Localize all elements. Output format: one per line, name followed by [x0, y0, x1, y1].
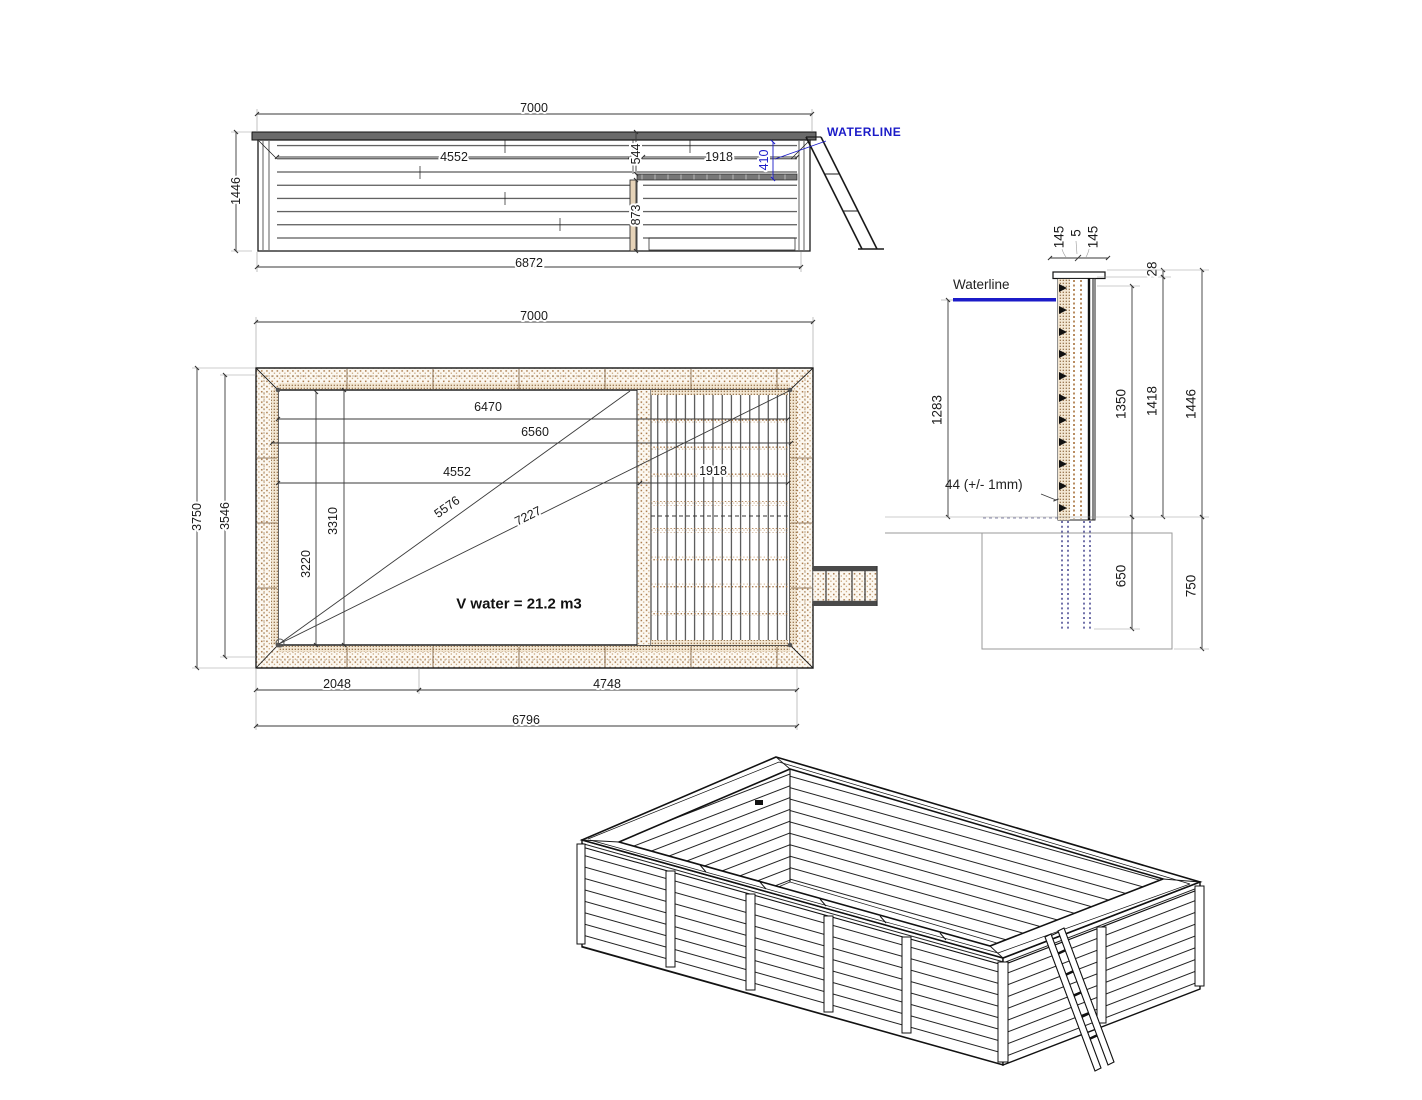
pool-technical-drawing: 7000 1446 6872 4552 1918 544 873 410 WAT… — [0, 0, 1422, 1100]
plan-dim-deck: 1918 — [699, 464, 727, 478]
water-volume-label: V water = 21.2 m3 — [456, 596, 582, 613]
plan-dim-side-inner: 3546 — [218, 502, 232, 530]
plan-dim-len3: 4552 — [443, 465, 471, 479]
rim-detail-mark — [755, 800, 763, 805]
sec-dim-height1: 1350 — [1114, 389, 1129, 419]
pool-top-rim — [252, 132, 816, 140]
section-dimensions: 145 5 145 1283 1350 1418 28 1446 650 750 — [885, 226, 1209, 649]
section-view: Waterline 145 5 145 1283 1350 1418 28 14… — [885, 226, 1209, 649]
wall-strip-right — [790, 390, 797, 645]
elev-dim-water: 410 — [757, 150, 771, 171]
sec-dim-height3: 1446 — [1184, 389, 1199, 419]
sec-base-note: 44 (+/- 1mm) — [945, 477, 1023, 492]
sec-dim-waterline-depth: 1283 — [930, 395, 945, 425]
plan-dim-vert1: 3310 — [326, 507, 340, 535]
sec-dim-height2: 1418 — [1145, 386, 1160, 416]
elev-dim-left: 1446 — [229, 177, 243, 205]
sec-dim-post-embed: 650 — [1114, 565, 1129, 588]
plan-dim-diag-long: 7227 — [512, 504, 543, 529]
wall-strip-left — [271, 390, 278, 645]
elev-dim-lower: 873 — [629, 205, 643, 226]
elev-dim-top: 7000 — [520, 101, 548, 115]
elev-dim-bottom: 6872 — [515, 256, 543, 270]
coping-cap — [1053, 272, 1105, 279]
foundation-pit — [982, 533, 1172, 649]
plan-dim-len1: 6470 — [474, 400, 502, 414]
wall-strip-top — [278, 383, 790, 389]
plan-dim-top: 7000 — [520, 309, 548, 323]
plan-dim-bottom2: 4748 — [593, 677, 621, 691]
elev-dim-deck: 1918 — [705, 150, 733, 164]
deck-area — [637, 390, 788, 645]
plan-dim-vert2: 3220 — [299, 550, 313, 578]
plan-dim-diag-short: 5576 — [432, 493, 463, 521]
sec-dim-wall-in: 145 — [1086, 226, 1101, 249]
buried-posts — [1062, 521, 1090, 629]
plan-dim-bottom1: 2048 — [323, 677, 351, 691]
waterline-label: WATERLINE — [827, 125, 901, 139]
section-waterline-label: Waterline — [953, 277, 1010, 292]
isometric-view — [577, 757, 1204, 1071]
elev-dim-upper: 544 — [629, 144, 643, 165]
plan-view: 7000 3750 3546 6470 6560 4552 1918 3310 … — [190, 309, 877, 730]
sec-dim-pit-depth: 750 — [1184, 575, 1199, 598]
plan-dim-side-outer: 3750 — [190, 503, 204, 531]
section-waterline — [953, 298, 1056, 302]
sec-dim-gap: 5 — [1069, 229, 1084, 237]
plan-dim-len2: 6560 — [521, 425, 549, 439]
elevation-view: 7000 1446 6872 4552 1918 544 873 410 WAT… — [229, 101, 901, 272]
plan-ladder — [813, 566, 877, 606]
sec-dim-wall-out: 145 — [1052, 226, 1067, 249]
planks-right-lower — [643, 180, 797, 251]
elev-dim-inner: 4552 — [440, 150, 468, 164]
drawing-svg: 7000 1446 6872 4552 1918 544 873 410 WAT… — [0, 0, 1422, 1100]
wall-strip-bottom — [278, 646, 790, 652]
plan-dim-bottom3: 6796 — [512, 713, 540, 727]
elevation-ladder — [806, 137, 884, 249]
sec-dim-top-offset: 28 — [1145, 261, 1160, 276]
